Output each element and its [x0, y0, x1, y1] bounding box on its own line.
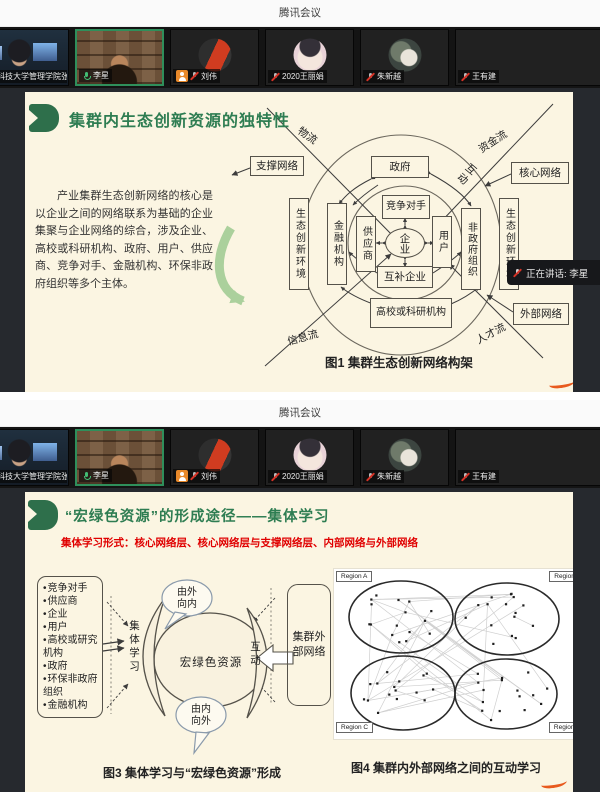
- actor-item: 金融机构: [43, 699, 100, 712]
- participant-name: 刘伟: [201, 71, 217, 82]
- participant-tile[interactable]: 2020王丽娟: [265, 429, 354, 486]
- participant-tile[interactable]: 科技大学管理学院张倩: [0, 429, 69, 486]
- avatar: [198, 39, 231, 72]
- mic-muted-icon: [461, 72, 470, 82]
- meeting-window-2: 腾讯会议 科技大学管理学院张倩 李星: [0, 400, 600, 800]
- actor-item: 环保非政府组织: [43, 673, 100, 699]
- participant-tile[interactable]: 刘伟: [170, 429, 259, 486]
- diagram-box-government: 政府: [371, 156, 429, 178]
- figure1-caption: 图1 集群生态创新网络构架: [325, 352, 473, 371]
- actor-item: 供应商: [43, 595, 100, 608]
- participant-tile[interactable]: 朱新越: [360, 29, 449, 86]
- diagram-box-user: 用户: [432, 216, 452, 268]
- mic-on-icon: [82, 71, 91, 81]
- mic-muted-icon: [190, 471, 199, 481]
- diagram-box-supplier: 供应商: [356, 216, 376, 272]
- participant-tile-active-speaker[interactable]: 李星: [75, 29, 164, 86]
- stacked-screenshots: 腾讯会议 科技大学管理学院张倩 李星: [0, 0, 600, 800]
- core-resource-label: 宏绿色资源: [171, 654, 251, 670]
- participant-name: 朱新越: [377, 471, 401, 482]
- diagram-box-external-network: 外部网络: [513, 303, 569, 325]
- participant-nametag: 王有建: [458, 70, 499, 83]
- mic-muted-icon: [271, 472, 280, 482]
- diagram-box-competitor: 竞争对手: [382, 195, 430, 219]
- diagram-box-finance: 金融机构: [327, 203, 347, 285]
- diagram-box-core-network: 核心网络: [511, 162, 569, 184]
- diagram-box-university: 高校或科研机构: [370, 298, 452, 328]
- participant-name: 刘伟: [201, 471, 217, 482]
- window-titlebar: 腾讯会议: [0, 0, 600, 27]
- actor-item: 竞争对手: [43, 582, 100, 595]
- mic-on-icon: [82, 471, 91, 481]
- figure4-caption: 图4 集群内外部网络之间的互动学习: [351, 759, 541, 776]
- participant-tile[interactable]: 王有建: [455, 29, 600, 86]
- participant-nametag: 王有建: [458, 470, 499, 483]
- external-network-box: 集群外部网络: [287, 584, 331, 706]
- avatar: [198, 439, 231, 472]
- participant-name: 李星: [93, 470, 109, 481]
- region-d-label: Region D: [549, 722, 573, 733]
- participant-tile[interactable]: 科技大学管理学院张倩: [0, 29, 69, 86]
- screen-share-area: 集群内生态创新资源的独特性 产业集群生态创新网络的核心是以企业之间的网络联系为基…: [0, 88, 600, 392]
- bubble-inside-out: 由内向外: [189, 704, 213, 727]
- host-badge-icon: [176, 70, 188, 82]
- actor-item: 政府: [43, 660, 100, 673]
- speaking-toast-text: 正在讲话: 李星: [526, 266, 588, 280]
- participant-tile[interactable]: 2020王丽娟: [265, 29, 354, 86]
- diagram-box-eco-env-left: 生态创新环境: [289, 198, 309, 290]
- window-title: 腾讯会议: [279, 407, 321, 419]
- avatar: [388, 39, 421, 72]
- participant-nametag: 2020王丽娟: [268, 70, 327, 83]
- participant-tile-active-speaker[interactable]: 李星: [75, 429, 164, 486]
- participant-nametag: 刘伟: [173, 69, 220, 83]
- participant-nametag: 李星: [79, 69, 112, 82]
- diagram-box-ngo: 非政府组织: [461, 208, 481, 290]
- interaction-label: 互动: [248, 641, 263, 668]
- mic-muted-icon: [271, 72, 280, 82]
- mic-muted-icon: [366, 72, 375, 82]
- external-network-label: 集群外部网络: [291, 630, 327, 660]
- slide-title: “宏绿色资源”的形成途径——集体学习: [65, 505, 330, 526]
- participant-name: 朱新越: [377, 71, 401, 82]
- avatar: [293, 439, 326, 472]
- region-c-label: Region C: [336, 722, 373, 733]
- slide-logo-icon: [29, 104, 59, 132]
- collective-learning-label: 集体学习: [127, 620, 142, 704]
- bubble-outside-in: 由外向内: [175, 587, 199, 610]
- mic-muted-icon: [461, 472, 470, 482]
- participant-name: 李星: [93, 70, 109, 81]
- video-strip: 科技大学管理学院张倩 李星 刘伟: [0, 27, 600, 88]
- screen-share-area: “宏绿色资源”的形成途径——集体学习 集体学习形式：核心网络层、核心网络层与支撑…: [0, 488, 600, 792]
- participant-tile[interactable]: 朱新越: [360, 429, 449, 486]
- participant-nametag: 朱新越: [363, 470, 404, 483]
- mic-muted-icon: [366, 472, 375, 482]
- speaking-toast: 正在讲话: 李星: [507, 260, 600, 285]
- participant-nametag: 刘伟: [173, 469, 220, 483]
- figure3-caption: 图3 集体学习与“宏绿色资源”形成: [103, 764, 281, 781]
- avatar: [574, 39, 600, 72]
- diagram-box-support-network: 支撑网络: [250, 156, 304, 176]
- actor-item: 用户: [43, 621, 100, 634]
- slide-paragraph: 产业集群生态创新网络的核心是以企业之间的网络联系为基础的企业集聚与企业网络的综合…: [35, 188, 213, 293]
- diagram-box-complementary: 互补企业: [377, 266, 433, 288]
- slide-title: 集群内生态创新资源的独特性: [69, 107, 290, 131]
- region-a-label: Region A: [336, 571, 372, 582]
- participant-tile[interactable]: 刘伟: [170, 29, 259, 86]
- participant-name: 科技大学管理学院张倩: [0, 471, 67, 482]
- actor-list: 竞争对手 供应商 企业 用户 高校或研究机构 政府 环保非政府组织 金融机构: [37, 576, 103, 718]
- participant-name: 王有建: [472, 71, 496, 82]
- participant-name: 2020王丽娟: [282, 71, 324, 82]
- diagram-ellipse-enterprise: 企业: [385, 228, 425, 258]
- host-badge-icon: [176, 470, 188, 482]
- slide-logo-icon: [28, 500, 58, 530]
- window-titlebar: 腾讯会议: [0, 400, 600, 427]
- participant-nametag: 朱新越: [363, 70, 404, 83]
- video-strip: 科技大学管理学院张倩 李星 刘伟: [0, 427, 600, 488]
- region-network-figure: [334, 569, 573, 739]
- window-title: 腾讯会议: [279, 7, 321, 19]
- mic-muted-icon: [190, 71, 199, 81]
- slide-subtitle: 集体学习形式：核心网络层、核心网络层与支撑网络层、内部网络与外部网络: [61, 535, 418, 550]
- participant-nametag: 2020王丽娟: [268, 470, 327, 483]
- meeting-window-1: 腾讯会议 科技大学管理学院张倩 李星: [0, 0, 600, 400]
- region-b-label: Region B: [549, 571, 573, 582]
- avatar: [293, 39, 326, 72]
- avatar: [388, 439, 421, 472]
- mic-muted-icon: [513, 268, 522, 278]
- participant-name: 王有建: [472, 471, 496, 482]
- slide-1: 集群内生态创新资源的独特性 产业集群生态创新网络的核心是以企业之间的网络联系为基…: [25, 92, 573, 392]
- actor-item: 企业: [43, 608, 100, 621]
- participant-tile[interactable]: 王有建: [455, 429, 600, 486]
- participant-nametag: 李星: [79, 469, 112, 482]
- participant-nametag: 科技大学管理学院张倩: [0, 470, 67, 483]
- avatar: [574, 439, 600, 472]
- participant-name: 2020王丽娟: [282, 471, 324, 482]
- participant-nametag: 科技大学管理学院张倩: [0, 70, 67, 83]
- slide-2: “宏绿色资源”的形成途径——集体学习 集体学习形式：核心网络层、核心网络层与支撑…: [25, 492, 573, 792]
- participant-name: 科技大学管理学院张倩: [0, 71, 67, 82]
- figure4-panel: Region A Region B Region C Region D: [333, 568, 573, 740]
- actor-item: 高校或研究机构: [43, 634, 100, 660]
